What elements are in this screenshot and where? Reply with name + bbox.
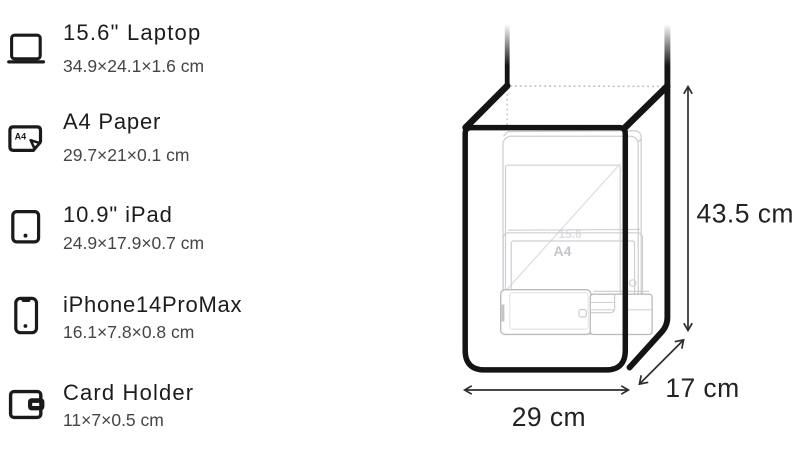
svg-text:A4: A4	[554, 243, 572, 259]
svg-text:29 cm: 29 cm	[512, 402, 586, 432]
svg-text:A4: A4	[15, 131, 27, 141]
svg-text:17 cm: 17 cm	[665, 373, 739, 403]
svg-text:15.6: 15.6	[559, 227, 583, 241]
svg-text:43.5 cm: 43.5 cm	[697, 198, 794, 228]
